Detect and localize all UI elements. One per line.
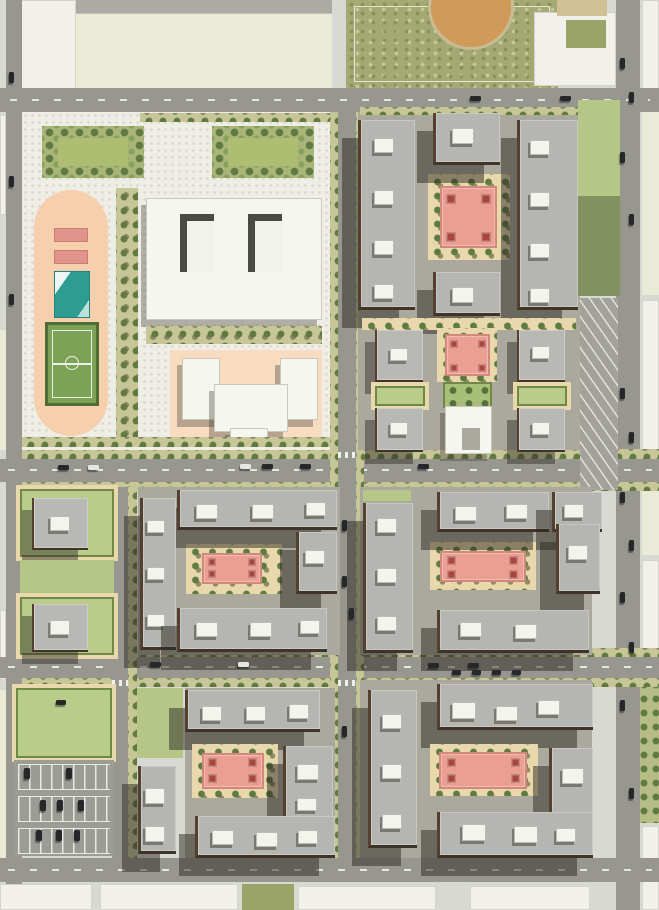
roofbox: [300, 620, 320, 634]
context-south-lot-2: [100, 884, 238, 910]
roofbox: [250, 622, 272, 637]
lawn-ne2-west: [375, 386, 425, 406]
roofbox: [256, 832, 278, 847]
roofbox: [305, 550, 325, 564]
roofbox: [452, 128, 474, 144]
car: [238, 662, 249, 667]
car: [88, 465, 99, 470]
car: [78, 800, 84, 811]
roofbox: [514, 826, 538, 843]
car: [629, 788, 634, 799]
car: [470, 96, 481, 101]
car: [9, 294, 14, 305]
car: [428, 663, 439, 668]
road-boundary-south-dashes: [8, 869, 652, 871]
car: [56, 700, 66, 705]
school-courtyard-west: [180, 214, 214, 272]
car: [342, 520, 347, 531]
car: [56, 830, 62, 841]
roofbox: [390, 422, 408, 435]
site-plan-canvas: [0, 0, 659, 910]
court-planter: [208, 570, 216, 578]
car: [9, 72, 14, 83]
car: [74, 830, 80, 841]
context-south-lot-1: [0, 884, 92, 910]
roofbox: [452, 287, 474, 303]
context-topleft-lot: [20, 0, 76, 90]
roofbox: [460, 622, 482, 637]
car: [629, 214, 634, 225]
court-planter: [509, 570, 518, 579]
context-south-lot-3: [298, 886, 436, 910]
roofbox: [382, 814, 402, 829]
roofbox: [50, 516, 70, 531]
road-north-dashes: [10, 99, 650, 101]
civic-notch: [462, 428, 480, 450]
roofbox: [462, 824, 486, 841]
car: [472, 670, 481, 675]
roofbox: [515, 624, 537, 639]
car: [468, 663, 479, 668]
roofbox: [390, 348, 408, 361]
court-planter: [248, 558, 256, 566]
roofbox: [202, 706, 222, 721]
context-right-lot-2: [642, 95, 659, 295]
soccer-center-circle: [65, 356, 79, 370]
roofbox: [374, 240, 394, 255]
court-planter: [248, 758, 257, 767]
car: [262, 464, 273, 469]
context-right-trees: [638, 678, 659, 823]
roofbox: [556, 828, 576, 842]
court-planter: [248, 570, 256, 578]
crosswalk-midwest: [112, 680, 128, 686]
campus-south-treerow: [22, 437, 330, 447]
bldg-ce-north: [437, 492, 549, 532]
roofbox: [530, 288, 550, 303]
court-planter: [447, 774, 456, 783]
roofbox: [289, 704, 309, 719]
roofbox: [530, 243, 550, 258]
roofbox: [538, 700, 560, 715]
garden-ne2: [443, 382, 492, 408]
car: [58, 465, 69, 470]
court-planter: [509, 556, 518, 565]
car: [620, 388, 625, 399]
roofbox: [145, 788, 165, 804]
parking-stalls-row: [18, 828, 110, 854]
car: [560, 96, 571, 101]
court-planter: [447, 758, 456, 767]
track-court-1: [54, 228, 88, 242]
crosswalk-center-south: [338, 680, 356, 686]
court-planter: [450, 364, 458, 372]
roofbox: [147, 614, 165, 627]
car: [620, 58, 625, 69]
parking-stalls-row: [18, 764, 110, 790]
bldg-se-east: [549, 748, 593, 820]
roofbox: [147, 520, 165, 533]
roofbox: [532, 422, 550, 435]
car: [620, 492, 625, 503]
campus-north-treerow: [140, 113, 330, 122]
car: [629, 432, 634, 443]
car: [36, 830, 42, 841]
car: [629, 540, 634, 551]
roofbox: [298, 830, 318, 844]
roofbox: [374, 284, 394, 299]
street-midwest-treerow: [128, 487, 137, 858]
context-top-band: [76, 0, 332, 14]
court-planter: [481, 232, 491, 242]
context-right-lot-3: [642, 300, 659, 450]
roofbox: [246, 706, 266, 721]
track-court-2: [54, 250, 88, 264]
car: [57, 800, 63, 811]
roofbox: [297, 798, 317, 811]
context-south-green: [242, 884, 294, 910]
campus-allee-trees: [116, 188, 138, 438]
court-planter: [446, 194, 456, 204]
court-planter: [446, 232, 456, 242]
car: [240, 464, 251, 469]
car: [620, 592, 625, 603]
lawn-south-mid: [137, 688, 183, 758]
court-planter: [447, 556, 456, 565]
roofbox: [50, 620, 70, 635]
school-building: [146, 198, 322, 320]
roofbox: [196, 622, 218, 637]
context-ne-tan: [557, 0, 607, 16]
roofbox: [382, 764, 402, 779]
court-planter: [478, 364, 486, 372]
car: [620, 700, 625, 711]
car: [349, 608, 354, 619]
kindergarten-center: [214, 384, 288, 432]
street-center: [338, 112, 356, 858]
court-planter: [208, 774, 217, 783]
roofbox: [306, 502, 326, 516]
roofbox: [506, 504, 528, 519]
roofbox: [374, 138, 394, 153]
car: [629, 92, 634, 103]
roofbox: [377, 616, 397, 631]
crosswalk-center-north: [338, 452, 356, 458]
court-planter: [478, 340, 486, 348]
roofbox: [297, 764, 319, 780]
roofbox: [564, 504, 584, 518]
roofbox: [530, 140, 550, 155]
roofbox: [212, 830, 234, 845]
car: [512, 670, 521, 675]
car: [342, 576, 347, 587]
roofbox: [496, 706, 518, 721]
car: [66, 768, 72, 779]
context-ne-green: [566, 20, 606, 48]
court-planter: [511, 758, 520, 767]
car: [418, 464, 429, 469]
school-courtyard-east: [248, 214, 282, 272]
roofbox: [452, 702, 476, 719]
car: [9, 176, 14, 187]
car: [300, 464, 311, 469]
roofbox: [562, 768, 584, 784]
car: [342, 726, 347, 737]
court-planter: [208, 758, 217, 767]
lawn-ne2-east: [517, 386, 567, 406]
roofbox: [530, 192, 550, 207]
roofbox: [382, 714, 402, 729]
street-midwest: [112, 487, 128, 858]
court-planter: [248, 774, 257, 783]
parking-east: [580, 298, 618, 490]
car: [629, 642, 634, 653]
campus-hedge-west-lawn: [58, 138, 128, 166]
roofbox: [568, 545, 588, 560]
roofbox: [455, 506, 477, 521]
roofbox: [147, 567, 165, 580]
court-planter: [450, 340, 458, 348]
car: [620, 152, 625, 163]
roofbox: [196, 504, 218, 519]
court-planter: [208, 558, 216, 566]
court-planter: [447, 570, 456, 579]
lawn-ce-nw: [363, 490, 411, 501]
car: [492, 670, 501, 675]
court-planter: [481, 194, 491, 204]
car: [40, 800, 46, 811]
roofbox: [252, 504, 274, 519]
court-planter: [511, 774, 520, 783]
splash-pool: [54, 271, 90, 318]
context-right-lot-1: [642, 0, 659, 95]
roofbox: [377, 568, 397, 583]
lawn-southwest: [16, 688, 112, 758]
car: [24, 768, 30, 779]
roofbox: [374, 190, 394, 205]
lawn-ne-shade: [578, 196, 620, 296]
school-south-treerow: [146, 326, 322, 344]
context-south-lot-4: [470, 886, 590, 910]
roofbox: [532, 346, 550, 359]
car: [452, 670, 461, 675]
campus-hedge-east-lawn: [228, 138, 298, 166]
lawn-west-mid: [20, 560, 114, 594]
car: [150, 662, 161, 667]
parking-stalls-row: [18, 796, 110, 822]
roofbox: [377, 518, 397, 533]
roofbox: [145, 826, 165, 842]
